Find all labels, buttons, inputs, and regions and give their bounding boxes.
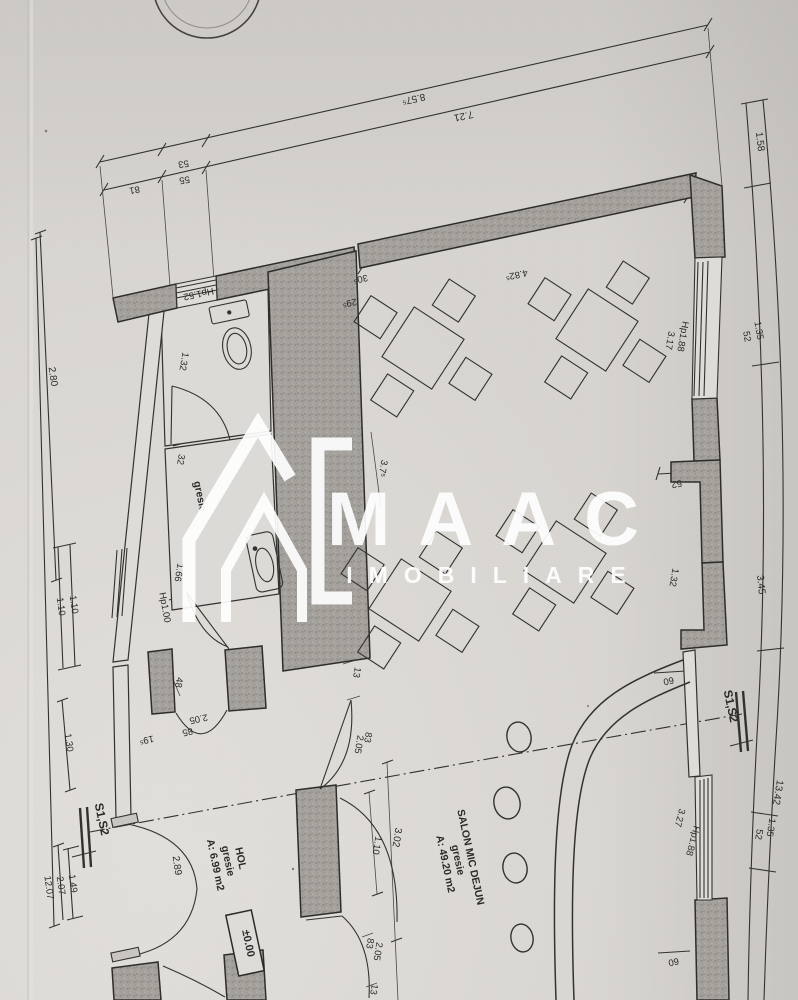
wc-rooms bbox=[161, 289, 279, 610]
dim-label: 52 bbox=[670, 477, 683, 490]
watermark-subtitle: IMOBILIARE bbox=[346, 562, 641, 588]
dim-label: 13 bbox=[350, 666, 363, 678]
dim-label: 48 bbox=[172, 676, 185, 688]
paper-speck bbox=[587, 705, 589, 707]
paper-fold bbox=[27, 0, 29, 1000]
hall-left-wall bbox=[113, 665, 131, 819]
wc-hall-wall-pier bbox=[148, 649, 175, 714]
right-wall-pier bbox=[690, 175, 725, 258]
hall-salon-pier bbox=[296, 785, 341, 917]
dim-label: 52 bbox=[752, 828, 765, 840]
dim-label: 60 bbox=[662, 674, 675, 687]
wc-hall-wall-pier bbox=[225, 646, 266, 711]
right-wall-pier bbox=[695, 898, 729, 1000]
paper-speck bbox=[45, 130, 48, 133]
dim-label: 55 bbox=[178, 173, 190, 186]
window-hp188-317 bbox=[692, 257, 722, 399]
dim-label: 53 bbox=[177, 157, 189, 170]
dim-label: 60 bbox=[667, 955, 680, 968]
dim-label: 3.45 bbox=[754, 574, 767, 595]
scanned-floor-plan: 8.57⁵ 7.21 81 55 53 1.58 1.35 52 3.45 13… bbox=[0, 0, 798, 1000]
dim-label: 81 bbox=[128, 183, 140, 196]
dim-label: 13 bbox=[367, 983, 380, 995]
right-wall-pier bbox=[692, 398, 720, 461]
floor-plan-svg: 8.57⁵ 7.21 81 55 53 1.58 1.35 52 3.45 13… bbox=[0, 0, 798, 1000]
dim-label: 52 bbox=[740, 330, 753, 342]
dim-label: 32 bbox=[174, 453, 187, 465]
entry-pier bbox=[112, 962, 161, 1000]
watermark-brand: MAAC bbox=[327, 477, 667, 562]
dim-label: 85 bbox=[181, 725, 194, 738]
paper-speck bbox=[292, 868, 294, 870]
